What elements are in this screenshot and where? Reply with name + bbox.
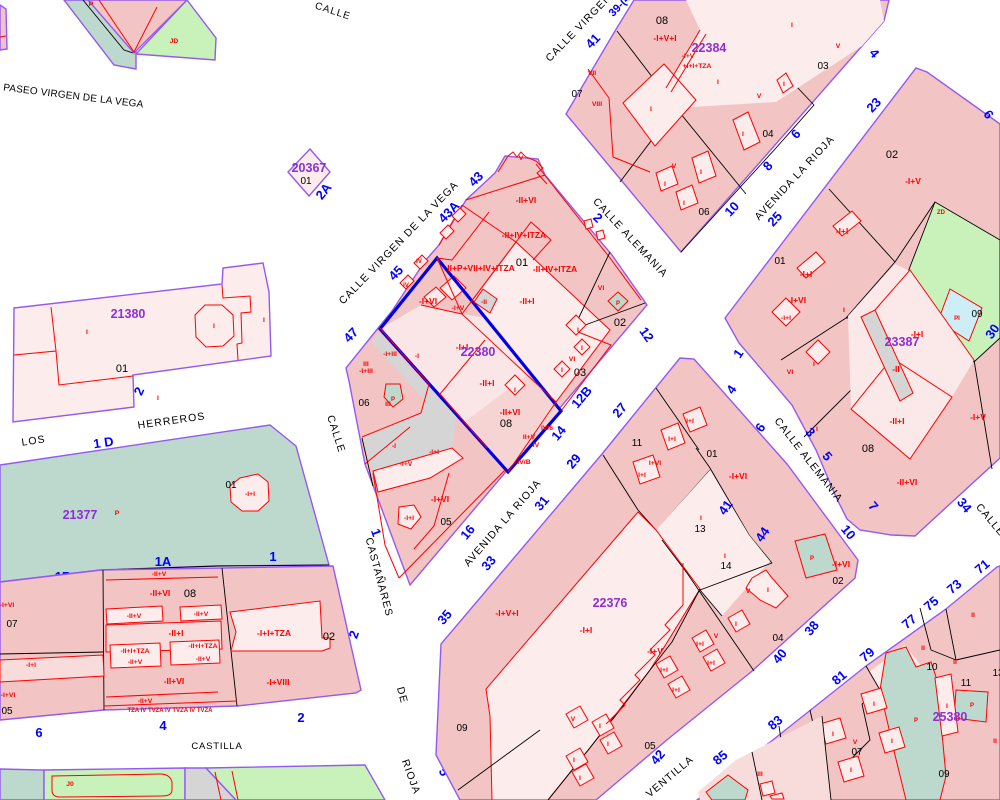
svg-text:01: 01 [225, 480, 237, 491]
svg-text:IV/B: IV/B [517, 459, 530, 466]
svg-text:V: V [714, 633, 719, 640]
svg-text:02: 02 [832, 576, 844, 587]
svg-text:13: 13 [694, 524, 706, 535]
svg-text:05: 05 [440, 517, 452, 528]
svg-text:-II+V: -II+V [152, 571, 167, 578]
svg-text:-II: -II [481, 299, 487, 306]
svg-text:IV: IV [533, 442, 540, 449]
svg-text:-I+I: -I+I [26, 662, 36, 669]
svg-text:I: I [946, 703, 948, 710]
svg-text:I: I [581, 345, 583, 352]
svg-text:I: I [213, 323, 215, 330]
svg-text:01: 01 [300, 176, 312, 187]
svg-text:V: V [853, 739, 858, 746]
svg-text:14: 14 [720, 561, 732, 572]
svg-text:IV: IV [403, 283, 409, 289]
svg-text:-II: -II [892, 364, 900, 374]
svg-text:01: 01 [706, 449, 718, 460]
svg-text:I+I: I+I [696, 641, 704, 648]
svg-text:I: I [650, 106, 652, 113]
svg-text:P: P [89, 1, 94, 8]
svg-text:-I: -I [415, 353, 419, 360]
svg-text:21377: 21377 [63, 508, 98, 522]
svg-text:IV: IV [416, 259, 422, 265]
svg-text:08: 08 [184, 588, 196, 600]
svg-text:ZD: ZD [937, 210, 946, 216]
svg-text:II+P+VII+IV+ITZA: II+P+VII+IV+ITZA [447, 263, 515, 273]
svg-text:-II+IV+ITZA: -II+IV+ITZA [533, 264, 577, 274]
svg-text:CASTILLA: CASTILLA [191, 741, 242, 752]
svg-text:-I+VI: -I+VI [788, 295, 806, 305]
svg-text:I: I [577, 327, 579, 334]
svg-text:II: II [971, 612, 975, 619]
svg-text:-I+VI: -I+VI [729, 471, 747, 481]
svg-text:-I+I: -I+I [245, 491, 255, 498]
svg-text:P: P [391, 397, 395, 403]
svg-text:-I: -I [392, 443, 396, 450]
svg-text:-II+VI: -II+VI [164, 676, 185, 686]
svg-text:-II+V: -II+V [196, 656, 211, 663]
svg-text:I: I [573, 757, 575, 764]
svg-text:II: II [921, 645, 925, 652]
svg-text:11: 11 [961, 678, 972, 689]
svg-text:III: III [363, 361, 369, 368]
svg-text:P: P [810, 556, 814, 562]
svg-text:II: II [953, 659, 957, 666]
svg-text:I: I [157, 395, 159, 402]
svg-text:-II+IV+ITZA: -II+IV+ITZA [502, 230, 546, 240]
svg-text:I: I [599, 723, 601, 730]
svg-text:I: I [791, 22, 793, 29]
svg-text:V: V [519, 155, 524, 162]
svg-text:-I+III: -I+III [383, 351, 397, 358]
svg-text:22380: 22380 [461, 345, 496, 359]
svg-text:I: I [514, 387, 516, 394]
svg-text:-I+V: -I+V [905, 176, 921, 186]
svg-text:TZA IV TVZA IV TVZA IV TVZA: TZA IV TVZA IV TVZA IV TVZA [128, 708, 214, 714]
svg-text:I: I [735, 621, 737, 628]
svg-text:-I+I: -I+I [429, 449, 439, 456]
svg-text:VIII: VIII [592, 101, 602, 108]
svg-text:07: 07 [6, 619, 18, 630]
svg-text:08: 08 [656, 15, 668, 27]
svg-text:-II+I: -II+I [480, 378, 495, 388]
svg-text:I: I [683, 200, 685, 207]
svg-text:P: P [115, 510, 120, 517]
svg-text:04: 04 [762, 129, 774, 140]
svg-text:02: 02 [886, 149, 898, 161]
svg-text:I: I [700, 515, 702, 522]
svg-text:JD: JD [170, 38, 179, 45]
svg-text:I: I [263, 317, 265, 324]
svg-text:-I+III: -I+III [359, 368, 373, 375]
svg-text:02: 02 [323, 631, 335, 643]
svg-text:21380: 21380 [111, 307, 146, 321]
svg-text:I: I [813, 361, 815, 368]
svg-text:II: II [993, 738, 997, 745]
svg-text:I: I [700, 169, 702, 176]
svg-text:I: I [742, 131, 744, 138]
svg-text:4: 4 [159, 718, 167, 733]
svg-text:-I+I: -I+I [781, 315, 791, 322]
svg-text:I+I: I+I [660, 667, 668, 674]
svg-text:I+I: I+I [638, 472, 646, 479]
svg-text:-II+V: -II+V [194, 611, 209, 618]
svg-text:25380: 25380 [933, 710, 968, 724]
svg-text:-I+V: -I+V [400, 461, 413, 468]
svg-text:P: P [616, 301, 620, 307]
svg-text:I: I [873, 701, 875, 708]
svg-text:VI: VI [787, 369, 794, 376]
svg-text:I: I [607, 741, 609, 748]
svg-text:I: I [86, 329, 88, 336]
svg-text:I+I: I+I [707, 660, 715, 667]
svg-text:-I+I: -I+I [800, 269, 813, 279]
svg-text:-I+V: -I+V [970, 412, 986, 422]
svg-text:-II+VI: -II+VI [500, 407, 521, 417]
svg-text:I: I [724, 553, 726, 560]
svg-text:-I+V+I: -I+V+I [653, 33, 676, 43]
svg-text:III: III [385, 401, 391, 408]
svg-text:2: 2 [297, 710, 304, 725]
svg-text:I: I [579, 775, 581, 782]
svg-text:-I+V: -I+V [682, 53, 695, 60]
svg-text:I: I [767, 587, 769, 594]
svg-text:-II+VI: -II+VI [150, 588, 171, 598]
svg-text:-I+VIII: -I+VIII [267, 677, 290, 687]
svg-text:01: 01 [516, 257, 528, 269]
svg-text:P: P [970, 703, 974, 709]
svg-text:07: 07 [571, 89, 583, 100]
svg-text:I: I [664, 181, 666, 188]
svg-text:-I+I: -I+I [836, 226, 849, 236]
svg-text:-II+I+TZA: -II+I+TZA [188, 643, 217, 650]
svg-text:V: V [746, 588, 751, 595]
svg-text:V: V [672, 163, 677, 170]
svg-text:VI: VI [598, 285, 605, 292]
svg-text:I: I [561, 367, 563, 374]
svg-text:I: I [843, 307, 845, 314]
svg-text:I+I: I+I [686, 418, 694, 425]
svg-text:-II+I: -II+I [169, 628, 184, 638]
svg-text:III: III [757, 771, 763, 778]
svg-text:-II+I: -II+I [520, 296, 535, 306]
svg-text:06: 06 [358, 398, 370, 409]
svg-text:J0: J0 [66, 781, 74, 788]
svg-text:03: 03 [574, 367, 586, 379]
svg-text:09: 09 [456, 723, 468, 734]
svg-text:13: 13 [992, 668, 1000, 679]
svg-text:V: V [571, 716, 576, 723]
svg-text:I: I [850, 767, 852, 774]
svg-text:-I+VI: -I+VI [419, 296, 437, 306]
svg-text:VI: VI [569, 356, 576, 363]
svg-text:-I+VI: -I+VI [431, 494, 449, 504]
svg-text:-I+I+TZA: -I+I+TZA [257, 628, 291, 638]
svg-text:-II+VI: -II+VI [897, 477, 918, 487]
svg-text:02: 02 [614, 317, 626, 329]
svg-text:-I+I: -I+I [404, 515, 414, 522]
svg-text:01: 01 [116, 363, 128, 375]
svg-text:I+VI: I+VI [649, 460, 661, 467]
svg-text:01: 01 [774, 256, 786, 267]
svg-text:V: V [757, 93, 762, 100]
svg-text:-I+VI: -I+VI [0, 602, 14, 609]
svg-text:II+V: II+V [523, 434, 536, 441]
svg-text:1: 1 [269, 549, 276, 564]
svg-text:05: 05 [1, 706, 13, 717]
svg-text:-II+V: -II+V [138, 698, 153, 705]
svg-text:06: 06 [698, 207, 710, 218]
svg-text:22384: 22384 [692, 41, 727, 55]
svg-text:08: 08 [862, 443, 874, 455]
svg-text:I: I [832, 731, 834, 738]
svg-text:I: I [783, 81, 785, 88]
svg-text:-I+V: -I+V [647, 646, 663, 656]
svg-text:10: 10 [926, 662, 938, 673]
svg-text:-II+V: -II+V [127, 613, 142, 620]
svg-text:-I+I: -I+I [911, 329, 924, 339]
svg-text:-I+V+I: -I+V+I [495, 608, 518, 618]
svg-text:08: 08 [500, 418, 512, 430]
svg-text:+I+I+TZA: +I+I+TZA [683, 63, 712, 70]
svg-text:20367: 20367 [292, 161, 327, 175]
svg-text:-I+VI: -I+VI [832, 559, 850, 569]
svg-text:03: 03 [817, 61, 829, 72]
svg-text:-II+I: -II+I [890, 416, 905, 426]
svg-text:-I+VI: -I+VI [1, 692, 16, 699]
svg-text:11: 11 [632, 438, 643, 449]
svg-text:VII: VII [588, 70, 596, 77]
svg-text:-II+VI: -II+VI [516, 195, 537, 205]
svg-text:I+I: I+I [668, 436, 676, 443]
svg-text:PI: PI [954, 316, 960, 322]
svg-text:-I+I: -I+I [580, 625, 593, 635]
svg-text:-II+V: -II+V [128, 659, 143, 666]
svg-text:6: 6 [35, 725, 42, 740]
svg-text:P: P [914, 718, 918, 724]
svg-text:-I+V: -I+V [452, 305, 465, 312]
svg-text:1A: 1A [155, 554, 172, 569]
svg-text:04: 04 [772, 633, 784, 644]
svg-text:V: V [836, 43, 841, 50]
svg-text:-II+I+TZA: -II+I+TZA [120, 648, 149, 655]
svg-text:09: 09 [971, 309, 983, 320]
svg-text:I+I: I+I [672, 687, 680, 694]
svg-text:07: 07 [851, 747, 863, 758]
svg-text:I: I [891, 738, 893, 745]
svg-text:I: I [717, 79, 719, 86]
svg-text:09: 09 [938, 769, 950, 780]
svg-text:22376: 22376 [593, 596, 628, 610]
